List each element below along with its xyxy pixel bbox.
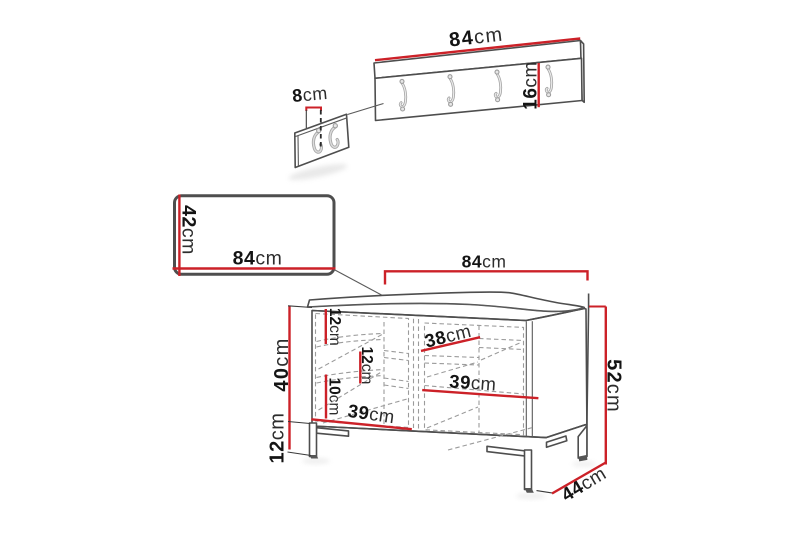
svg-text:42cm: 42cm — [178, 205, 200, 255]
svg-text:12cm: 12cm — [326, 308, 343, 346]
svg-text:16cm: 16cm — [521, 61, 542, 109]
svg-text:10cm: 10cm — [326, 378, 343, 416]
svg-text:12cm: 12cm — [267, 413, 289, 464]
svg-text:8cm: 8cm — [291, 83, 328, 106]
svg-text:84cm: 84cm — [233, 248, 283, 270]
svg-text:52cm: 52cm — [603, 359, 625, 413]
svg-text:12cm: 12cm — [358, 347, 375, 385]
svg-text:40cm: 40cm — [271, 337, 293, 391]
svg-text:84cm: 84cm — [462, 252, 507, 272]
svg-text:39cm: 39cm — [449, 370, 498, 394]
